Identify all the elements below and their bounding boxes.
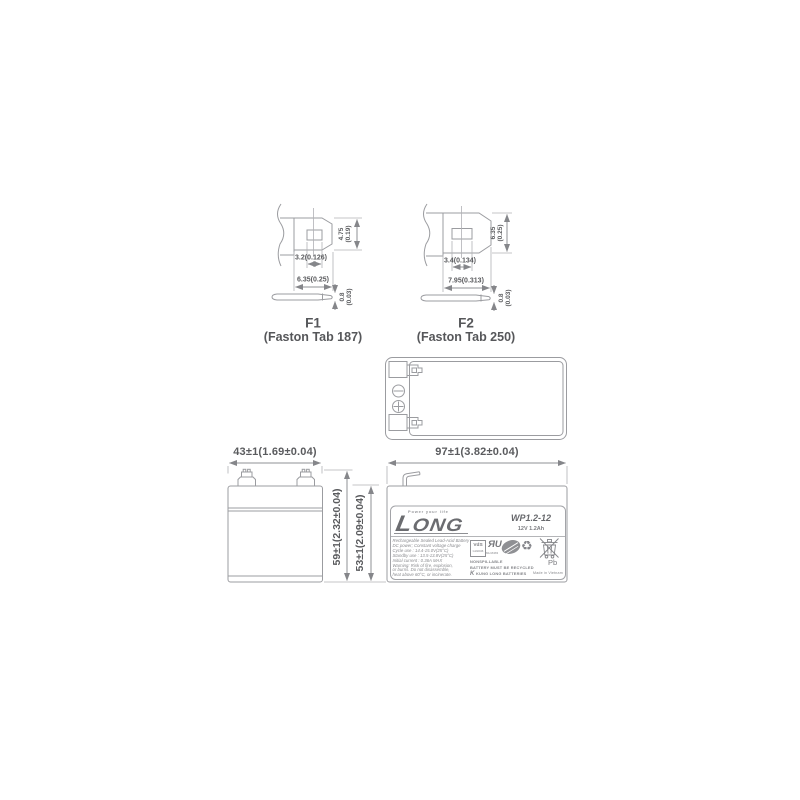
battery-datasheet-page: 4.75 (0.19) 3.2(0.126) 6.35(0.25) 0.8 (0…	[0, 0, 800, 800]
company-name: KUNG LONG BATTERIES	[476, 571, 526, 576]
ul-icon: ЯU	[488, 539, 502, 550]
front-width-dimension: 43±1(1.69±0.04)	[233, 446, 317, 458]
label-description: Rechargeable Sealed Lead-Acid Battery DC…	[393, 539, 470, 578]
side-width-dimension: 97±1(3.82±0.04)	[435, 446, 519, 458]
label-rating: 12V 1.2Ah	[498, 526, 564, 532]
vds-icon: VdS G192046	[470, 540, 486, 557]
company-row: KKUNG LONG BATTERIES	[470, 571, 526, 577]
f1-thickness-dimension: 0.8 (0.03)	[339, 289, 353, 306]
nonspillable-text: NONSPILLABLE	[470, 559, 503, 564]
f2-title: F2	[458, 316, 474, 331]
f2-subtitle: (Faston Tab 250)	[417, 330, 515, 344]
recycle-notice-text: BATTERY MUST BE RECYCLED	[470, 565, 534, 570]
battery-front-view	[228, 463, 323, 582]
kung-long-k-icon: K	[470, 571, 475, 577]
battery-top-view	[386, 358, 567, 440]
technical-drawing-canvas	[0, 0, 800, 800]
body-height-dimension: 53±1(2.09±0.04)	[355, 495, 367, 572]
f1-hole-dimension: 3.2(0.126)	[295, 255, 327, 262]
recycle-icon: ♻	[521, 539, 533, 554]
pb-label: Pb	[548, 558, 557, 567]
origin-text: Made in Vietnam	[533, 571, 563, 575]
f1-width-dimension: 6.35(0.25)	[297, 277, 329, 284]
label-model: WP1.2-12	[498, 513, 564, 523]
f2-height-dimension: 6.35 (0.25)	[490, 225, 504, 242]
f1-subtitle: (Faston Tab 187)	[264, 330, 362, 344]
f1-title: F1	[305, 316, 321, 331]
f1-height-dimension: 4.75 (0.19)	[338, 226, 352, 243]
ul-file-number: MH16383	[486, 551, 498, 555]
brand-underline	[394, 533, 468, 534]
f2-thickness-dimension: 0.8 (0.03)	[498, 290, 512, 307]
total-height-dimension: 59±1(2.32±0.04)	[332, 489, 344, 566]
f2-width-dimension: 7.95(0.313)	[448, 278, 484, 285]
f2-hole-dimension: 3.4(0.134)	[444, 258, 476, 265]
